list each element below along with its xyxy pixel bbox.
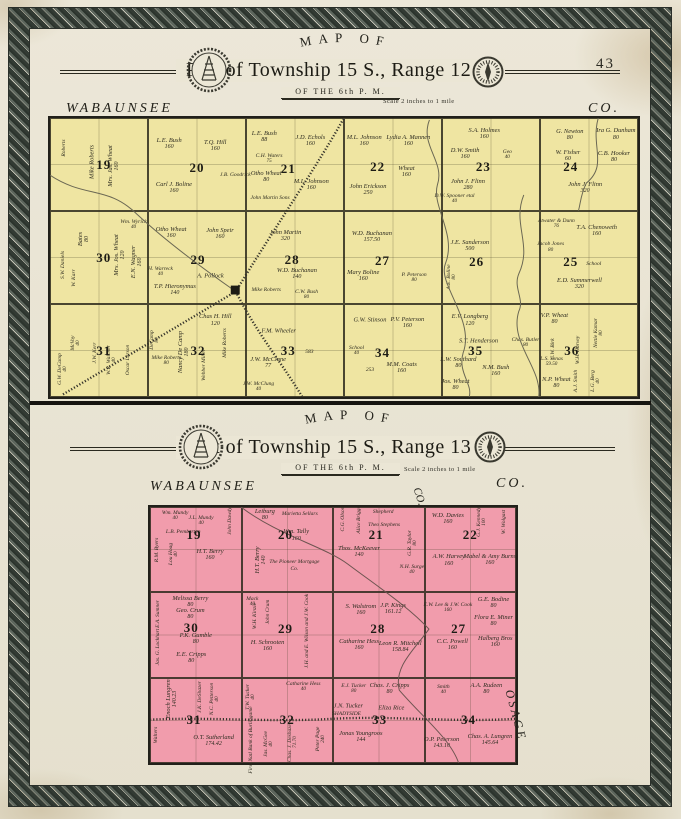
section-19: 19Wm. Mundy40J.L. Mundy40L.B. PembertonJ… xyxy=(150,507,242,592)
section-number: 36 xyxy=(564,343,579,359)
section-number: 24 xyxy=(563,159,578,175)
section-32: 32DeCamp80Chas H. Hill120Nancy De Camp18… xyxy=(148,304,246,397)
map2-corner-county-label: CO. xyxy=(411,486,428,507)
section-32: 32T.W. Tucker40Catharine Hess40First Nat… xyxy=(242,678,334,763)
parcel-label: J.L. Mundy40 xyxy=(189,515,214,527)
parcel-label: John J. Flinn320 xyxy=(568,181,602,195)
parcel-label: Mike Roberts80 xyxy=(152,356,181,368)
map2-title: Part of Township 15 S., Range 13 E. xyxy=(0,436,681,459)
parcel-label: H.T. Berry160 xyxy=(197,548,224,562)
parcel-label: Geo40 xyxy=(503,150,512,162)
parcel-label: J.K. DeShazer xyxy=(197,681,203,713)
section-number: 22 xyxy=(370,159,385,175)
parcel-label: C.B. Hooker80 xyxy=(598,150,630,164)
parcel-label: M.L. Johnson160 xyxy=(347,134,382,148)
parcel-label: M.L. Johnson160 xyxy=(294,178,329,192)
parcel-label: Eliza Rice xyxy=(378,704,404,711)
parcel-label: H. Schrooten160 xyxy=(251,639,285,653)
section-number: 31 xyxy=(186,712,201,728)
parcel-label: Peter Page240 xyxy=(315,726,327,751)
parcel-label: Geo. Crum80 xyxy=(176,607,204,621)
section-24: 24G. Newton80Ira G. Dunham80W. Fisher60C… xyxy=(540,118,638,211)
parcel-label: John Erickson250 xyxy=(350,183,387,197)
parcel-label: John Martin320 xyxy=(270,229,302,243)
section-number: 22 xyxy=(463,527,478,543)
parcel-label: O.P. Peterson143.10 xyxy=(424,736,459,750)
parcel-label: Mike Roberts xyxy=(89,145,96,179)
parcel-label: A.J. Smith xyxy=(573,370,579,392)
section-19: 19RobertsMike RobertsMrs. Jas. Wheat160 xyxy=(50,118,148,211)
parcel-label: N.C. Petterson40 xyxy=(210,682,222,715)
parcel-label: Mary Boline160 xyxy=(347,269,379,283)
section-number: 27 xyxy=(451,621,466,637)
parcel-label: John Dawdy xyxy=(227,508,233,536)
section-number: 21 xyxy=(281,161,296,177)
parcel-label: G.E. Bodine80 xyxy=(478,596,509,610)
svg-text:MAP OF: MAP OF xyxy=(303,407,396,427)
seal-icon xyxy=(178,424,224,470)
parcel-label: J.E. Sanderson500 xyxy=(451,239,490,253)
section-number: 35 xyxy=(468,343,483,359)
map2-subtitle: OF THE 6th P. M. xyxy=(0,463,681,475)
parcel-label: J.P. Kings161.12 xyxy=(380,602,406,616)
map1-county-right: CO. xyxy=(588,101,620,117)
section-29: 29Mack40W.H. KinzieJohn CrumH. Schrooten… xyxy=(242,592,334,677)
parcel-label: Mrs. Jos. Wheat120 xyxy=(113,234,127,276)
section-number: 32 xyxy=(280,712,295,728)
section-34: 34G.W. StinsonP.V. Peterson160School4025… xyxy=(344,304,442,397)
parcel-label: Alice Briggs xyxy=(356,507,362,534)
parcel-label: Mike Roberts xyxy=(222,328,228,357)
section-35: 35E.V. Longberg120S.T. HendersonL.W. Sou… xyxy=(442,304,540,397)
parcel-label: W. Wolgast xyxy=(501,510,507,534)
parcel-label: A.W. Harvey160 xyxy=(433,554,465,568)
parcel-label: L.G. Berg40 xyxy=(590,371,602,393)
section-23: 23S.A. Holmes160D.W. Smith160Geo40John J… xyxy=(442,118,540,211)
compass-icon xyxy=(474,431,506,463)
svg-text:MAP OF: MAP OF xyxy=(298,30,391,50)
parcel-label: S. Walstrom160 xyxy=(346,603,376,617)
parcel-label: A.A. Rudeen80 xyxy=(470,682,502,696)
map2-subtitle-text: OF THE 6th P. M. xyxy=(281,463,400,475)
parcel-label: W.H. Kinzie xyxy=(252,603,258,629)
parcel-label: Ira G. Dunham80 xyxy=(596,128,635,142)
parcel-label: Leiburg80 xyxy=(255,508,275,522)
parcel-label: SHADYSIDE xyxy=(332,711,361,717)
atlas-page: 43 MAP OF Part of Township 15 S., Range … xyxy=(0,0,681,819)
section-number: 33 xyxy=(372,712,387,728)
section-31: 31G.W. DeCamp40McVoy40J.W. KerrW.R. Walc… xyxy=(50,304,148,397)
parcel-label: School40 xyxy=(349,345,364,357)
parcel-label: McVoy40 xyxy=(70,336,82,351)
parcel-label: Leon R. Mitchell158.84 xyxy=(379,640,422,654)
parcel-label: L.S. Jonas59.50 xyxy=(540,356,563,368)
parcel-label: 253 xyxy=(366,367,374,373)
section-30: 30Bates80Wm. Wyrick40Mrs. Jos. Wheat120E… xyxy=(50,211,148,304)
parcel-label: G.R. Taylor80 xyxy=(407,530,419,556)
parcel-label: Thos. McKeever140 xyxy=(338,545,380,559)
parcel-label: Jonas Youngroos144 xyxy=(339,730,382,744)
parcel-label: E.W. Lee & J.W. Cook160 xyxy=(423,602,472,614)
parcel-label: Mike Roberts xyxy=(251,287,280,293)
map2-county-left: WABAUNSEE xyxy=(150,479,257,495)
parcel-label: C.C. Powell160 xyxy=(437,638,468,652)
map2-county-right: CO. xyxy=(496,476,528,492)
parcel-label: C.G. Olson xyxy=(340,506,346,531)
parcel-label: E.E. Cripps80 xyxy=(176,651,206,665)
parcel-label: Flora E. Miner80 xyxy=(474,614,513,628)
section-28: 28John Martin320W.D. Buchanan140Mike Rob… xyxy=(246,211,344,304)
parcel-label: Jos. Wheat80 xyxy=(441,378,469,392)
township-map-range-12e: 19RobertsMike RobertsMrs. Jas. Wheat1602… xyxy=(48,116,640,399)
parcel-label: Chas H. Hill120 xyxy=(199,314,232,328)
parcel-label: S.W. Daniels xyxy=(60,251,66,279)
parcel-label: E.J. Tucker80 xyxy=(341,683,366,695)
parcel-label: W.D. Davies160 xyxy=(432,512,464,526)
parcel-label: J.H. and E. Wilson and J.W. Cook xyxy=(304,594,310,669)
map1-title: Part of Township 15 S., Range 12 E. xyxy=(0,59,681,82)
section-28: 28S. Walstrom160J.P. Kings161.12Catharin… xyxy=(333,592,425,677)
parcel-label: Atwater & Dunn76 xyxy=(538,218,575,230)
parcel-label: W.D. Buchanan140 xyxy=(277,267,317,281)
parcel-label: Oscar Larson xyxy=(125,344,131,374)
section-number: 31 xyxy=(96,343,111,359)
section-22: 22M.L. Johnson160Lydia A. Mannen160Wheat… xyxy=(344,118,442,211)
parcel-label: O.T. Sutherland174.42 xyxy=(193,734,234,748)
section-number: 23 xyxy=(476,159,491,175)
parcel-label: Enoch Lungren140.23 xyxy=(166,680,180,719)
parcel-label: Walters xyxy=(153,727,159,744)
parcel-label: E.A. Sumner xyxy=(155,600,161,628)
section-27: 27W.D. Buchanan157.50Mary Boline160P. Pe… xyxy=(344,211,442,304)
parcel-label: N.P. Wheat80 xyxy=(542,376,570,390)
parcel-label: 583 xyxy=(305,349,313,355)
section-33: 33E.J. Tucker80Chas. J. Cripps80J.N. Tuc… xyxy=(333,678,425,763)
section-number: 26 xyxy=(469,254,484,270)
parcel-label: C.W. Bush80 xyxy=(295,289,318,301)
parcel-label: Wm. Wyrick40 xyxy=(120,219,146,231)
section-33: 33F.M. Wheeler583J.W. McClune77J.W. McCl… xyxy=(246,304,344,397)
parcel-label: Catharine Hess40 xyxy=(286,681,320,693)
section-21: 21C.G. OlsonAlice BriggsShepherdTheo Ste… xyxy=(333,507,425,592)
section-26: 26J.E. Sanderson500A.E. Boline80 xyxy=(442,211,540,304)
parcel-label: A. Pollock xyxy=(197,272,224,279)
parcel-label: E.D. Summerwell320 xyxy=(557,277,602,291)
parcel-label: Smith40 xyxy=(437,684,450,696)
parcel-label: Chas. Butler80 xyxy=(512,337,540,349)
parcel-label: T.P. Hieronymus140 xyxy=(154,283,196,297)
parcel-label: Mabel & Amy Burns160 xyxy=(464,553,517,567)
parcel-label: John J. Flinn280 xyxy=(451,179,485,193)
parcel-label: H. Warreck40 xyxy=(148,266,173,278)
seal-icon xyxy=(186,47,232,93)
section-36: 36V.P. Wheat80C.W. BirkL.S. Jonas59.50N.… xyxy=(540,304,638,397)
section-number: 30 xyxy=(96,250,111,266)
parcel-label: G.W. DeCamp40 xyxy=(57,353,69,385)
section-number: 27 xyxy=(375,253,390,269)
map-divider-rule xyxy=(30,401,651,405)
parcel-label: L.E. Bush160 xyxy=(157,137,182,151)
parcel-label: Chas. J. Cripps80 xyxy=(370,682,410,696)
parcel-label: T.A. Chenoweth160 xyxy=(576,224,617,238)
parcel-label: Wheat160 xyxy=(398,165,414,179)
section-number: 33 xyxy=(281,343,296,359)
map1-scale-note: Scale 2 inches to 1 mile xyxy=(383,98,455,105)
parcel-label: N.H. Surge40 xyxy=(400,564,424,576)
parcel-label: Otho Wheat160 xyxy=(156,226,187,240)
parcel-label: The Pioneer Mortgage Co. xyxy=(266,559,322,571)
parcel-label: John Speir160 xyxy=(206,227,234,241)
section-20: 20Leiburg80Marietta SellarsWm. Tally160H… xyxy=(242,507,334,592)
section-number: 20 xyxy=(190,160,205,176)
section-number: 32 xyxy=(190,343,205,359)
section-number: 29 xyxy=(190,252,205,268)
parcel-label: Marietta Sellars xyxy=(282,511,318,517)
parcel-label: J.N. Tucker xyxy=(334,703,363,710)
parcel-label: DeCamp80 xyxy=(149,330,161,350)
parcel-label: F.M. Wheeler xyxy=(261,328,296,335)
section-31: 31Enoch Lungren140.23J.K. DeShazerN.C. P… xyxy=(150,678,242,763)
parcel-label: G. Newton80 xyxy=(556,129,583,143)
section-number: 20 xyxy=(278,527,293,543)
parcel-label: P. Peterson80 xyxy=(402,272,427,284)
section-number: 34 xyxy=(375,345,390,361)
section-number: 28 xyxy=(370,621,385,637)
parcel-label: Nettie Kamar80 xyxy=(593,318,605,348)
section-20: 20L.E. Bush160T.Q. Hill160Carl J. Boline… xyxy=(148,118,246,211)
parcel-label: W. Karr xyxy=(71,269,77,287)
section-number: 19 xyxy=(186,527,201,543)
parcel-label: E.N. Wagner160 xyxy=(131,246,145,279)
map2-title-text: Part of Township 15 S., Range 13 E. xyxy=(176,436,505,459)
parcel-label: Roberts xyxy=(61,140,67,157)
section-22: 22W.D. Davies160G.J. Kennedy100W. Wolgas… xyxy=(425,507,517,592)
parcel-label: Catharine Hess160 xyxy=(339,638,379,652)
parcel-label: First Natl Bank of Burlingame xyxy=(248,707,254,774)
parcel-label: L.E. Bush88 xyxy=(252,130,277,144)
parcel-label: Jacob Jones80 xyxy=(537,242,564,254)
parcel-label: John Martin Sons xyxy=(250,195,289,201)
parcel-label: Carl J. Boline160 xyxy=(156,181,192,195)
parcel-label: J.W. McClung40 xyxy=(243,381,274,393)
parcel-label: Chas. A. Lungren145.64 xyxy=(468,733,513,747)
parcel-label: C.H. Waters75 xyxy=(256,153,283,165)
map1-county-left: WABAUNSEE xyxy=(66,101,173,117)
section-21: 21L.E. Bush88J.D. Echols160C.H. Waters75… xyxy=(246,118,344,211)
parcel-label: Halberg Bros160 xyxy=(478,635,513,649)
section-25: 25Atwater & Dunn76T.A. Chenoweth160Jacob… xyxy=(540,211,638,304)
township-map-range-13e: 19Wm. Mundy40J.L. Mundy40L.B. PembertonJ… xyxy=(148,505,518,765)
section-30: 30Melissa Berry80Geo. Crum80P.K. Gumble8… xyxy=(150,592,242,677)
map2-scale-note: Scale 2 inches to 1 mile xyxy=(404,466,476,473)
parcel-label: S.A. Holmes160 xyxy=(469,127,500,141)
parcel-label: V.P. Wheat80 xyxy=(541,312,568,326)
parcel-label: J.B. Goodrick xyxy=(220,172,251,178)
section-number: 28 xyxy=(285,252,300,268)
parcel-label: D.W. Spooner etal40 xyxy=(434,193,474,205)
parcel-label: Shepherd xyxy=(373,509,394,515)
section-number: 21 xyxy=(369,527,384,543)
section-number: 25 xyxy=(563,254,578,270)
parcel-label: Bates80 xyxy=(77,232,91,246)
parcel-label: John Crum xyxy=(265,599,271,624)
parcel-label: T.Q. Hill160 xyxy=(204,139,226,153)
parcel-label: G.W. Stinson xyxy=(353,316,386,323)
parcel-label: M.M. Coats160 xyxy=(386,361,416,375)
map1-subtitle-text: OF THE 6th P. M. xyxy=(281,87,400,99)
parcel-label: N.M. Bush160 xyxy=(482,365,509,379)
parcel-label: W.D. Buchanan157.50 xyxy=(352,230,392,244)
section-number: 34 xyxy=(461,712,476,728)
parcel-label: Wm. Mundy40 xyxy=(162,510,189,522)
parcel-label: Jas. McGee40 xyxy=(263,731,275,757)
map1-subtitle: OF THE 6th P. M. xyxy=(0,87,681,99)
section-29: 29Otho Wheat160John Speir160H. Warreck40… xyxy=(148,211,246,304)
parcel-label: Otho Wheat80 xyxy=(251,170,282,184)
section-number: 19 xyxy=(96,157,111,173)
parcel-label: E.V. Longberg120 xyxy=(452,314,488,328)
parcel-label: Lydia A. Mannen160 xyxy=(386,134,430,148)
parcel-label: Lou Hoag40 xyxy=(168,543,180,565)
parcel-label: R.M. Byers xyxy=(154,537,160,562)
section-27: 27E.W. Lee & J.W. Cook160G.E. Bodine80Fl… xyxy=(425,592,517,677)
parcel-label: G.J. Kennedy100 xyxy=(476,507,488,537)
parcel-label: P.V. Peterson160 xyxy=(391,316,425,330)
parcel-label: A.E. Boline80 xyxy=(446,264,458,289)
parcel-label: J.D. Echols160 xyxy=(296,134,326,148)
parcel-label: Jas. G. Lockhart xyxy=(155,629,161,666)
parcel-label: School xyxy=(586,261,601,267)
compass-icon xyxy=(472,56,504,88)
section-number: 30 xyxy=(184,620,199,636)
section-number: 29 xyxy=(278,621,293,637)
